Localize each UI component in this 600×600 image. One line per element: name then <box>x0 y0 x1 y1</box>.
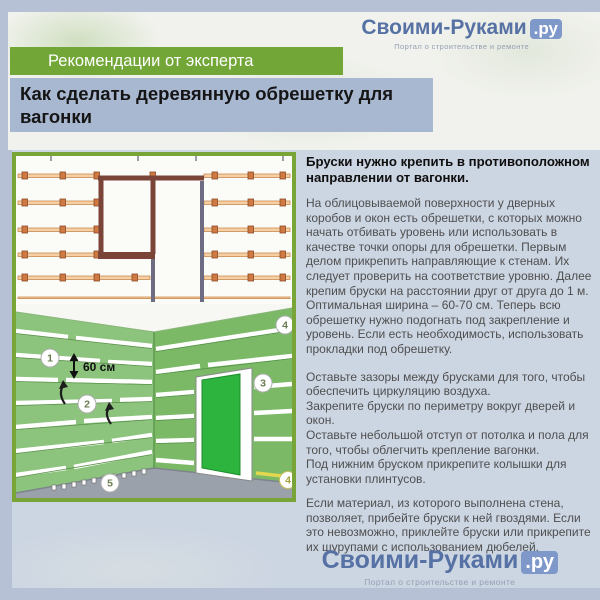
article-text-column: Бруски нужно крепить в противоположном н… <box>306 154 594 555</box>
callout-1: 1 <box>41 349 59 367</box>
site-logo-bottom: Своими-Руками.ру Портал о строительстве … <box>322 546 558 587</box>
callout-5: 5 <box>101 474 119 492</box>
door <box>196 368 252 481</box>
tld-badge: .ру <box>521 551 558 574</box>
tld-badge: .ру <box>530 19 562 39</box>
tip-item: Под нижним бруском прикрепите колышки дл… <box>306 457 594 486</box>
callout-2: 2 <box>78 395 96 413</box>
svg-text:4: 4 <box>285 475 291 487</box>
svg-text:5: 5 <box>107 478 113 490</box>
wall-elevation <box>16 156 292 304</box>
lathing-diagram-svg: 60 см 1 2 3 4 <box>16 156 292 498</box>
door-panel <box>202 374 240 475</box>
expert-badge-band: Рекомендации от эксперта <box>10 47 343 75</box>
tip-item: Оставьте зазоры между брусками для того,… <box>306 370 594 399</box>
room-perspective: 60 см 1 2 3 4 <box>16 304 292 498</box>
brand-text: Своими-Руками <box>322 546 519 574</box>
article-lead: Бруски нужно крепить в противоположном н… <box>306 154 594 186</box>
svg-text:2: 2 <box>84 399 90 411</box>
callout-4: 4 <box>276 316 292 334</box>
article-intro: На облицовываемой поверхности у дверных … <box>306 196 594 357</box>
svg-text:1: 1 <box>47 353 53 365</box>
svg-text:3: 3 <box>260 378 266 390</box>
page-title: Как сделать деревянную обрешетку для ваг… <box>10 78 433 132</box>
lathing-diagram: 60 см 1 2 3 4 <box>12 152 296 502</box>
article-tips: Оставьте зазоры между брусками для того,… <box>306 370 594 487</box>
tip-item: Закрепите бруски по периметру вокруг две… <box>306 399 594 428</box>
brand-text: Своими-Руками <box>361 16 526 39</box>
site-logo-top: Своими-Руками.ру Портал о строительстве … <box>361 16 562 51</box>
logo-tagline: Портал о строительстве и ремонте <box>322 577 558 587</box>
logo-tagline: Портал о строительстве и ремонте <box>361 42 562 51</box>
callout-3: 3 <box>254 374 272 392</box>
tip-item: Оставьте небольшой отступ от потолка и п… <box>306 428 594 457</box>
dimension-label: 60 см <box>83 360 115 374</box>
svg-text:4: 4 <box>282 320 288 332</box>
callout-plinth: 4 <box>280 472 293 489</box>
